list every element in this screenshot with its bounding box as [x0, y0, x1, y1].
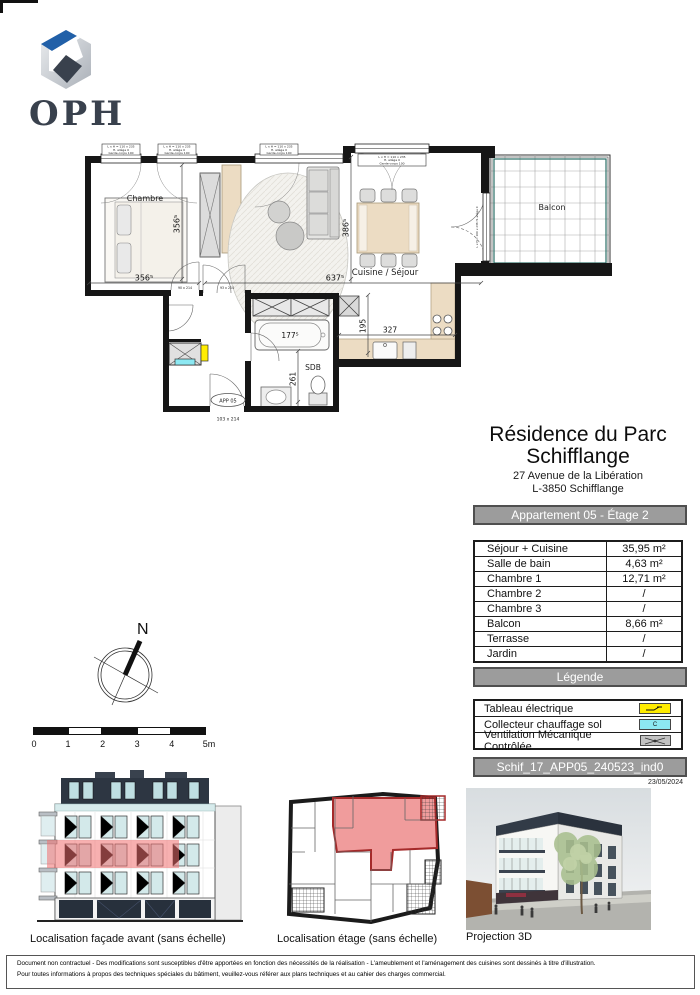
scale-tick: 0 [31, 739, 36, 749]
room-label-sdb: SDB [305, 363, 321, 372]
row-label: Chambre 1 [474, 572, 607, 587]
table-row: Chambre 112,71 m² [474, 572, 682, 587]
bed [105, 198, 187, 282]
svg-text:Garde-corps 100: Garde-corps 100 [379, 162, 404, 166]
table-row: Salle de bain4,63 m² [474, 557, 682, 572]
facade-elevation [35, 768, 245, 930]
address-line1: 27 Avenue de la Libération [473, 470, 683, 483]
row-label: Salle de bain [474, 557, 607, 572]
row-value: 12,71 m² [607, 572, 683, 587]
compass-icon: N [88, 612, 198, 722]
pouf [268, 201, 290, 223]
dim-table-h: 386⁵ [342, 219, 351, 237]
dim-chambre-w: 356⁵ [135, 274, 153, 283]
scale-bar: 0 1 2 3 4 5m [28, 722, 218, 752]
row-label: Jardin [474, 647, 607, 663]
legend-item: Ventilation Mécanique Contrôlée [475, 733, 681, 748]
kitchen-counter [337, 283, 455, 365]
vmc-swatch-icon [640, 735, 671, 746]
table-row: Terrasse/ [474, 632, 682, 647]
row-value: 35,95 m² [607, 541, 683, 557]
room-label-cuisine-sejour: Cuisine / Séjour [352, 267, 419, 278]
balcony: Balcon [490, 155, 610, 267]
scale-tick: 2 [100, 739, 105, 749]
svg-text:L x H = 200 x 236 H. allège 0: L x H = 200 x 236 H. allège 0 [475, 206, 479, 247]
room-label-chambre: Chambre [127, 194, 164, 203]
dim-kitchen-h: 195 [359, 319, 368, 334]
row-label: Chambre 2 [474, 587, 607, 602]
scale-segment [102, 727, 137, 735]
collector-swatch-icon: C [639, 719, 671, 730]
entry-badge: APP 05 103 x 214 [211, 394, 245, 423]
washbasin [261, 387, 291, 407]
scale-tick: 3 [135, 739, 140, 749]
reference-banner: Schif_17_APP05_240523_ind0 [473, 757, 687, 777]
footer-line2: Pour toutes informations à propos des te… [17, 971, 684, 978]
dim-sejour-w: 637⁵ [326, 274, 344, 283]
floor-plan: Balcon [85, 143, 615, 428]
etage-caption: Localisation étage (sans échelle) [277, 933, 437, 945]
tech-closet [169, 339, 208, 365]
row-value: / [607, 632, 683, 647]
scale-segment [33, 727, 68, 735]
table-row: Séjour + Cuisine35,95 m² [474, 541, 682, 557]
electrical-swatch-icon [639, 703, 671, 714]
table-row: Balcon8,66 m² [474, 617, 682, 632]
table-row: Jardin/ [474, 647, 682, 663]
kitchen-sink-icon [373, 342, 397, 359]
facade-caption: Localisation façade avant (sans échelle) [30, 933, 226, 945]
row-value: 4,63 m² [607, 557, 683, 572]
svg-text:Garde-corps 100: Garde-corps 100 [108, 151, 133, 155]
tableau-electrique-icon [201, 345, 208, 361]
collecteur-chauffage-icon [175, 359, 195, 365]
row-label: Chambre 3 [474, 602, 607, 617]
svg-text:Garde-corps 100: Garde-corps 100 [164, 151, 189, 155]
sheet-corner-mark-h [0, 0, 38, 3]
legend-label: Tableau électrique [484, 703, 573, 715]
row-label: Balcon [474, 617, 607, 632]
dining-table [357, 189, 419, 267]
svg-text:90 x 214: 90 x 214 [178, 286, 192, 290]
svg-text:93 x 214: 93 x 214 [220, 286, 234, 290]
legend-item: Tableau électrique [475, 701, 681, 717]
row-label: Terrasse [474, 632, 607, 647]
legend-label: Ventilation Mécanique Contrôlée [484, 729, 640, 753]
entry-door-size: 103 x 214 [217, 417, 240, 423]
scale-tick: 5m [203, 739, 216, 749]
sheet-corner-mark-v [0, 0, 3, 13]
surface-table: Séjour + Cuisine35,95 m² Salle de bain4,… [473, 540, 683, 663]
plan-sheet: { "logo": { "text": "OPH" }, "plan": { "… [0, 0, 700, 995]
sofa [307, 167, 339, 239]
project-title-line2: Schifflange [473, 446, 683, 468]
oph-logo-text: OPH [29, 94, 125, 134]
scale-tick: 4 [169, 739, 174, 749]
footer-disclaimer: Document non contractuel - Des modificat… [6, 955, 695, 989]
etage-location-plan [275, 788, 450, 930]
row-value: 8,66 m² [607, 617, 683, 632]
svg-text:Garde-corps 100: Garde-corps 100 [266, 151, 291, 155]
address-line2: L-3850 Schifflange [473, 483, 683, 496]
legend-table: Tableau électrique Collecteur chauffage … [473, 699, 683, 750]
legend-banner: Légende [473, 667, 687, 687]
north-label: N [137, 621, 149, 638]
apartment-banner: Appartement 05 - Étage 2 [473, 505, 687, 525]
plan-date: 23/05/2024 [473, 779, 683, 786]
project-title: Résidence du Parc Schifflange [473, 424, 683, 468]
project-title-line1: Résidence du Parc [473, 424, 683, 446]
pouf [276, 222, 304, 250]
row-value: / [607, 647, 683, 663]
dim-chambre-h: 356⁵ [173, 215, 182, 233]
scale-tick: 1 [65, 739, 70, 749]
svg-text:APP 05: APP 05 [219, 399, 236, 405]
table-row: Chambre 2/ [474, 587, 682, 602]
dim-sdb-h: 261 [289, 372, 298, 387]
scale-segment [171, 727, 206, 735]
oph-logo-mark [36, 30, 96, 92]
scale-segment [137, 727, 172, 735]
scale-segment [68, 727, 103, 735]
footer-line1: Document non contractuel - Des modificat… [17, 960, 684, 967]
row-value: / [607, 602, 683, 617]
dim-bath: 177⁵ [281, 331, 298, 340]
projection-3d [466, 788, 651, 930]
row-value: / [607, 587, 683, 602]
dim-kitchen-w: 327 [383, 326, 398, 335]
room-label-balcon: Balcon [539, 203, 566, 212]
toilet [309, 376, 327, 405]
projection-caption: Projection 3D [466, 931, 532, 943]
row-label: Séjour + Cuisine [474, 541, 607, 557]
project-address: 27 Avenue de la Libération L-3850 Schiff… [473, 470, 683, 496]
table-row: Chambre 3/ [474, 602, 682, 617]
apartment-highlight [47, 840, 179, 868]
